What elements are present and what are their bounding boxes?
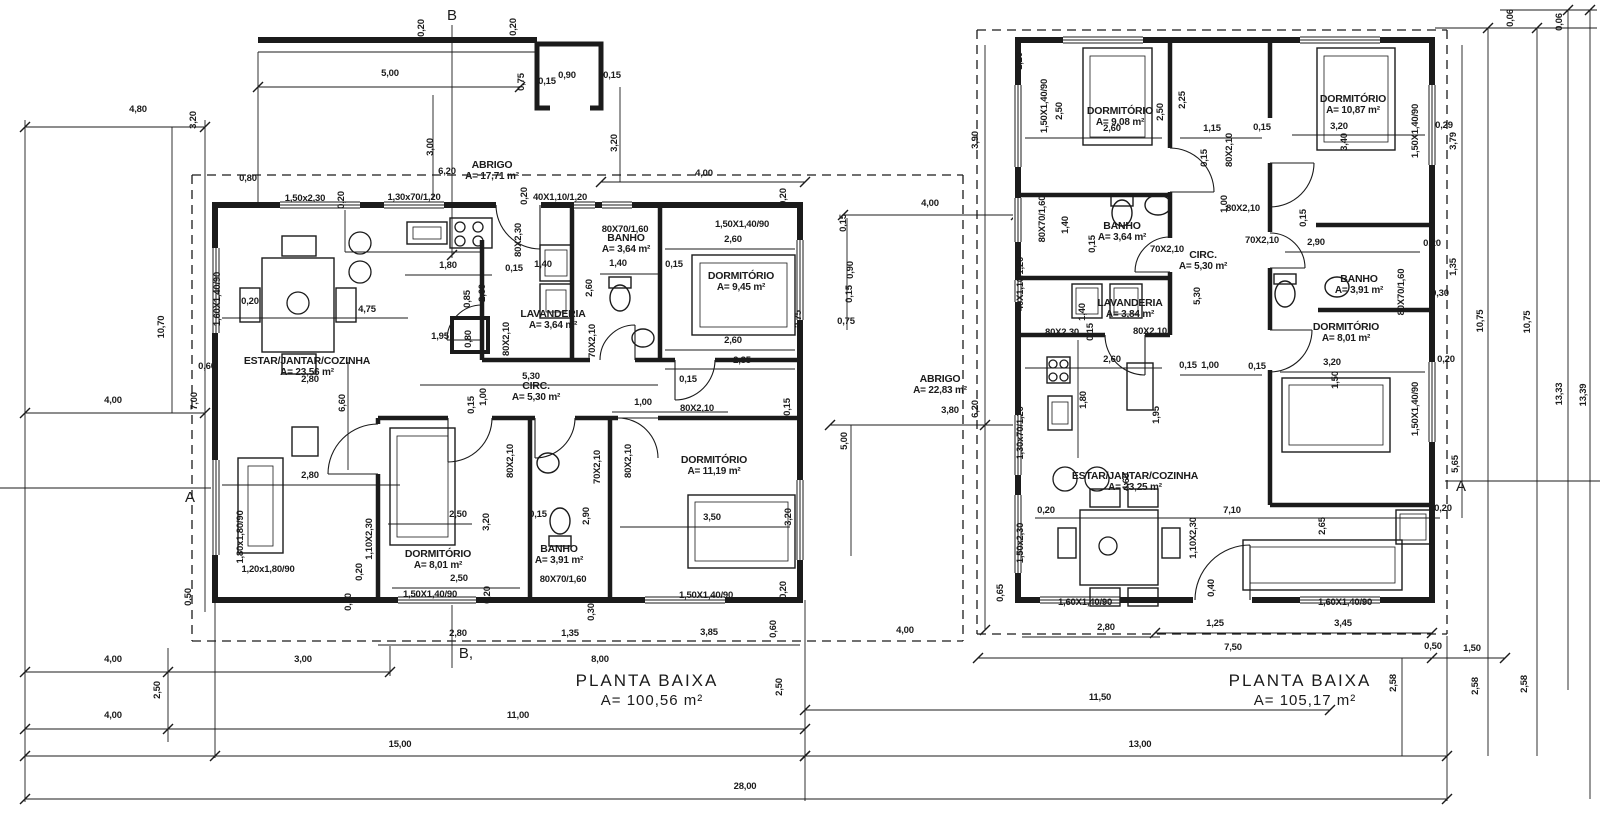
room-label: BANHO [1103, 220, 1141, 232]
dimension-label: 0,15 [679, 374, 698, 385]
dimension-label: 0,50 [1424, 641, 1442, 652]
dimension-label: 4,00 [896, 625, 914, 636]
dimension-label: 0,15 [505, 263, 524, 274]
room-label: ABRIGO [920, 373, 961, 385]
dimension-label: 2,65 [1317, 516, 1328, 535]
windows [211, 35, 1437, 605]
dimension-label: 4,00 [695, 168, 713, 179]
plan-title: PLANTA BAIXA [1229, 671, 1372, 690]
room-label: DORMITÓRIO [681, 453, 747, 466]
dimension-label: 2,60 [584, 279, 595, 297]
dimension-label: 2,58 [1470, 677, 1481, 695]
dimension-label: 2,58 [1388, 674, 1399, 692]
dimension-label: 1,50x2,30 [1015, 523, 1026, 563]
room-label: CIRC. [1189, 249, 1217, 261]
dimension-label: 70X2,10 [592, 450, 603, 484]
dimension-label: 0,20 [508, 18, 519, 36]
section-marker: B [447, 7, 457, 24]
dimension-label: 80X2,10 [623, 444, 634, 478]
dimension-label: 1,60X1,40/90 [212, 272, 223, 326]
dimension-label: 0,75 [837, 316, 856, 327]
dimension-label: 3,40 [1339, 133, 1350, 151]
dimension-label: 0,50 [343, 593, 354, 611]
dimension-label: 2,60 [724, 335, 742, 346]
dimension-label: 0,65 [995, 583, 1006, 602]
dimension-label: 28,00 [734, 781, 757, 792]
dimension-label: 1,40 [534, 259, 552, 270]
dimension-label: 3,20 [1330, 121, 1348, 132]
dimension-label: 1,40 [609, 258, 627, 269]
dimension-label: 2,90 [581, 507, 592, 525]
dimension-label: 3,20 [609, 134, 620, 152]
dimension-label: 2,90 [1307, 237, 1325, 248]
dimension-label: 3,90 [970, 131, 981, 149]
dimension-label: 11,50 [1089, 692, 1111, 703]
room-label: DORMITÓRIO [1087, 104, 1153, 117]
room-area-label: A= 9,45 m² [717, 282, 766, 293]
dimension-label: 1,80 [439, 260, 457, 271]
room-area-label: A= 22,83 m² [913, 385, 968, 396]
dimension-label: 2,50 [774, 678, 785, 696]
dimension-label: 40X1,10/1,20 [1015, 257, 1026, 311]
room-area-label: A= 3,64 m² [1098, 232, 1147, 243]
dimension-label: 0,90 [558, 70, 576, 81]
room-area-label: A= 9,08 m² [1096, 117, 1145, 128]
dimension-label: 80X2,10 [505, 444, 516, 478]
dimension-label: 2,60 [477, 284, 488, 302]
room-area-label: A= 8,01 m² [414, 560, 463, 571]
room-label: ESTAR/JANTAR/COZINHA [1072, 470, 1199, 482]
dimension-label: 0,15 [1085, 322, 1096, 341]
room-area-label: A= 23,56 m² [280, 367, 335, 378]
text-labels: 4,803,2010,704,007,000,604,003,002,504,0… [104, 7, 1589, 792]
room-label: LAVANDERIA [520, 308, 586, 320]
dimension-label: 5,00 [839, 432, 850, 450]
dimension-label: 0,15 [838, 213, 849, 232]
dimension-label: 1,25 [1206, 618, 1225, 629]
dimension-label: 5,00 [381, 68, 399, 79]
dimension-label: 8,00 [591, 654, 609, 665]
dimension-label: 80X2,10 [680, 403, 714, 414]
dimension-label: 10,70 [156, 316, 167, 339]
dimension-label: 0,15 [1087, 234, 1098, 253]
dimension-label: 6,60 [337, 394, 348, 412]
dimension-label: 4,00 [104, 395, 122, 406]
dimension-label: 0,50 [183, 588, 194, 606]
dimension-label: 0,15 [782, 397, 793, 416]
dimension-label: 80X2,10 [1224, 133, 1235, 167]
dimension-label: 2,58 [1519, 675, 1530, 693]
dimension-label: 1,50X1,40/90 [1410, 382, 1421, 436]
dimension-label: 0,20 [1437, 354, 1455, 365]
dimension-label: 0,15 [538, 76, 557, 87]
dimension-label: 13,00 [1129, 739, 1152, 750]
room-label: BANHO [607, 232, 645, 244]
dimension-label: 3,45 [1334, 618, 1353, 629]
dimension-label: 0,20 [1423, 238, 1441, 249]
dimension-label: 80X70/1,60 [540, 574, 587, 585]
dimension-label: 2,80 [1097, 622, 1115, 633]
section-marker: A [185, 489, 195, 506]
room-area-label: A= 23,25 m² [1108, 482, 1163, 493]
room-label: DORMITÓRIO [405, 547, 471, 560]
dimension-label: 0,15 [844, 284, 855, 303]
dimension-label: 3,20 [188, 111, 199, 129]
dimension-label: 80X70/1,60 [1037, 196, 1048, 243]
dimension-label: 0,30 [1431, 288, 1449, 299]
dimension-label: 1,35 [1448, 257, 1459, 276]
dimension-label: 1,20 [1014, 52, 1025, 70]
dimension-label: 13,39 [1578, 384, 1589, 407]
furniture [238, 48, 1430, 606]
room-area-label: A= 3,64 m² [602, 244, 651, 255]
dimension-label: 0,15 [466, 395, 477, 414]
dimension-label: 0,15 [1248, 361, 1267, 372]
dimension-label: 6,20 [970, 400, 981, 418]
room-label: BANHO [1340, 273, 1378, 285]
dimension-label: 1,60X1,40/90 [1318, 597, 1372, 608]
room-area-label: A= 3,91 m² [535, 555, 584, 566]
dimension-label: 0,15 [1298, 208, 1309, 227]
room-area-label: A= 5,30 m² [1179, 261, 1228, 272]
dimension-label: 11,00 [507, 710, 529, 721]
plan-title: PLANTA BAIXA [576, 671, 719, 690]
dimension-label: 1,50X1,40/90 [1039, 79, 1050, 133]
dimension-label: 3,50 [703, 512, 721, 523]
dimension-label: 0,20 [778, 581, 789, 599]
dimension-label: 70X2,10 [587, 324, 598, 358]
dimension-label: 1,60X1,40/90 [1058, 597, 1112, 608]
dimension-label: 0,20 [1037, 505, 1055, 516]
dimension-label: 7,10 [1223, 505, 1241, 516]
dimension-label: 4,00 [921, 198, 939, 209]
dimension-label: 1,20x1,80/90 [241, 564, 294, 575]
dimension-label: 40X1,10/1,20 [533, 192, 587, 203]
dimension-label: 0,15 [665, 259, 684, 270]
room-label: BANHO [540, 543, 578, 555]
dimension-label: 2,25 [1177, 90, 1188, 109]
room-area-label: A= 17,71 m² [465, 171, 520, 182]
dimension-label: 0,90 [845, 261, 856, 279]
room-area-label: A= 3,64 m² [529, 320, 578, 331]
dimension-label: 80X70/1,60 [1396, 269, 1407, 316]
dimension-label: 3,85 [700, 627, 719, 638]
door-swings [328, 148, 1314, 600]
dimension-label: 1,95 [1151, 405, 1162, 424]
dimension-label: 2,50 [152, 681, 163, 699]
room-label: DORMITÓRIO [708, 269, 774, 282]
dimension-label: 3,00 [425, 138, 436, 156]
dimension-label: 2,50 [1155, 103, 1166, 121]
dimension-label: 2,80 [449, 628, 467, 639]
dimension-label: 1,00 [478, 388, 489, 406]
dimension-label: 1,15 [1203, 123, 1222, 134]
dimension-label: 0,40 [1206, 579, 1217, 597]
dimension-label: 1,50X1,40/90 [679, 590, 733, 601]
dimension-label: 0,20 [482, 586, 493, 604]
dimension-label: 0,80 [463, 330, 474, 348]
plan-area: A= 100,56 m² [601, 692, 703, 709]
room-label: LAVANDERIA [1097, 297, 1163, 309]
dimension-label: 0,15 [1199, 148, 1210, 167]
dimension-label: 70X2,10 [1150, 244, 1184, 255]
dimension-label: 3,20 [481, 513, 492, 531]
dimension-label: 1,50X1,40/90 [715, 219, 769, 230]
dimension-label: 1,00 [1201, 360, 1219, 371]
dimension-label: 0,30 [586, 603, 597, 621]
room-label: ABRIGO [472, 159, 513, 171]
dimension-label: 3,20 [1323, 357, 1341, 368]
dimension-label: 15,00 [389, 739, 412, 750]
room-label: DORMITÓRIO [1313, 320, 1379, 333]
dimension-label: 0,06 [1505, 9, 1516, 27]
dimension-label: 1,35 [561, 628, 580, 639]
dimension-label: 0,15 [1179, 360, 1198, 371]
dimension-label: 0,20 [778, 188, 789, 206]
dimension-label: 3,79 [1448, 132, 1459, 150]
dimension-label: 2,60 [1103, 354, 1121, 365]
dimension-label: 0,15 [603, 70, 622, 81]
section-marker: A [1456, 478, 1466, 495]
dimension-label: 6,20 [438, 166, 456, 177]
dimension-label: 10,75 [1522, 310, 1533, 334]
room-area-label: A= 5,30 m² [512, 392, 561, 403]
dimension-label: 2,50 [1054, 102, 1065, 120]
dimension-label: 2,50 [449, 509, 467, 520]
dimension-label: 0,85 [462, 289, 473, 308]
dimension-label: 1,50X1,40/90 [403, 589, 457, 600]
dimension-label: 0,60 [768, 620, 779, 638]
room-label: CIRC. [522, 380, 550, 392]
dimension-label: 7,50 [1224, 642, 1242, 653]
dimension-label: 1,40 [1077, 303, 1088, 321]
dimension-label: 4,00 [104, 654, 122, 665]
room-label: ESTAR/JANTAR/COZINHA [244, 355, 371, 367]
dimension-label: 2,35 [733, 355, 752, 366]
dimension-label: 1,10X2,30 [364, 518, 375, 560]
dimension-label: 0,06 [1554, 13, 1565, 31]
room-area-label: A= 11,19 m² [687, 466, 741, 477]
dimension-label: 1,30x70/1,20 [1015, 406, 1026, 459]
dimension-label: 80X2,30 [513, 223, 524, 257]
dimension-label: 7,00 [189, 392, 200, 410]
dimension-label: 0,20 [416, 19, 427, 37]
plan-area: A= 105,17 m² [1254, 692, 1356, 709]
dimension-label: 1,10X2,30 [1188, 517, 1199, 559]
dimension-label: 4,00 [104, 710, 122, 721]
floor-plan-page: 4,803,2010,704,007,000,604,003,002,504,0… [0, 0, 1600, 828]
dimension-label: 80X2,10 [1133, 326, 1167, 337]
dimension-label: 0,20 [519, 187, 530, 205]
dimension-label: 1,80x1,80/90 [235, 510, 246, 563]
dimension-label: 3,00 [294, 654, 312, 665]
dimension-label: 13,33 [1554, 383, 1565, 406]
dimension-label: 2,50 [450, 573, 468, 584]
dimension-label: 0,15 [1253, 122, 1272, 133]
section-marker: B, [459, 645, 473, 662]
dimension-label: 0,60 [198, 361, 216, 372]
room-area-label: A= 3,91 m² [1335, 285, 1384, 296]
dimension-label: 1,00 [634, 397, 652, 408]
dimension-label: 80X2,30 [1045, 327, 1079, 338]
dimension-label: 4,75 [358, 304, 377, 315]
dimension-label: 0,20 [1434, 503, 1452, 514]
dimension-label: 80X2,10 [501, 322, 512, 356]
dimension-label: 2,60 [724, 234, 742, 245]
dimension-label: 2,75 [793, 309, 804, 328]
dimension-label: 0,15 [529, 509, 548, 520]
room-area-label: A= 3,84 m² [1106, 309, 1155, 320]
dimension-label: 1,50X1,40/90 [1410, 104, 1421, 158]
dimension-label: 1,50x2,30 [285, 193, 325, 204]
floor-plan-canvas: 4,803,2010,704,007,000,604,003,002,504,0… [0, 0, 1600, 828]
room-label: DORMITÓRIO [1320, 92, 1386, 105]
dimension-label: 1,50 [1330, 371, 1341, 389]
walls [215, 40, 1432, 600]
room-area-label: A= 10,87 m² [1326, 105, 1381, 116]
dimension-label: 3,80 [941, 405, 959, 416]
room-area-label: A= 8,01 m² [1322, 333, 1371, 344]
dimension-label: 5,65 [1450, 454, 1461, 473]
dimension-label: 80X2,10 [1226, 203, 1260, 214]
dimension-label: 4,80 [129, 104, 147, 115]
dimension-label: 0,20 [241, 296, 259, 307]
dimension-label: 1,40 [1060, 216, 1071, 234]
dimension-label: 0,29 [1435, 120, 1453, 131]
dimension-label: 0,75 [516, 72, 527, 91]
dimension-label: 0,20 [336, 191, 347, 209]
dimension-label: 1,50 [1463, 643, 1481, 654]
dimension-label: 1,30x70/1,20 [387, 192, 440, 203]
dimension-label: 1,95 [431, 331, 450, 342]
dimension-label: 10,75 [1475, 309, 1486, 333]
dimension-label: 5,30 [1192, 287, 1203, 305]
dimension-label: 2,80 [301, 470, 319, 481]
dimension-label: 0,20 [354, 563, 365, 581]
dimension-label: 70X2,10 [1245, 235, 1279, 246]
dimension-label: 0,80 [239, 173, 257, 184]
dimension-label: 1,80 [1078, 391, 1089, 409]
dimension-label: 3,20 [783, 508, 794, 526]
